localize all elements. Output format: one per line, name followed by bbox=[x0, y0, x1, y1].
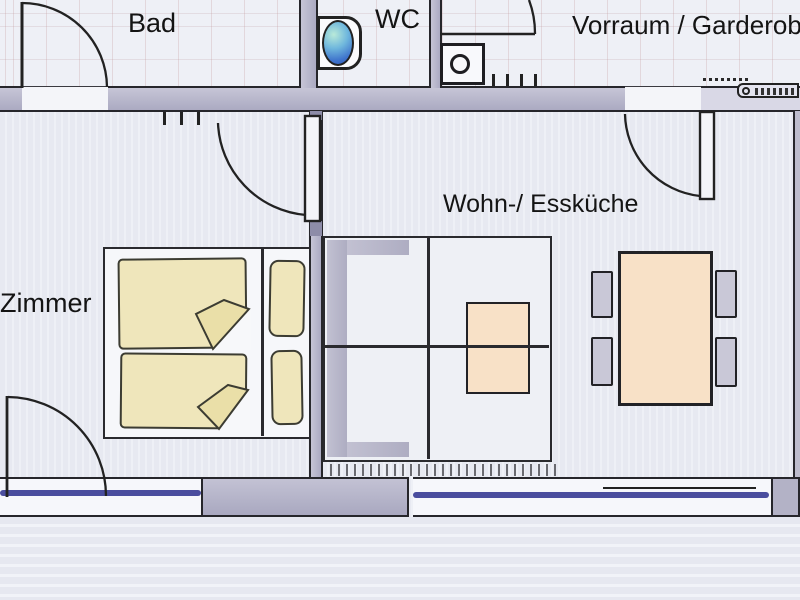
radiator-fins bbox=[755, 88, 797, 95]
double-bed bbox=[103, 247, 311, 439]
wall-bottom-segment bbox=[201, 477, 409, 517]
room-label-vorraum: Vorraum / Garderobe bbox=[572, 10, 800, 41]
coffee-table bbox=[466, 302, 530, 394]
wall-radiator bbox=[737, 83, 799, 98]
sofa-divider-line bbox=[427, 238, 430, 459]
dining-chair bbox=[715, 337, 737, 387]
sofa-armrest bbox=[347, 240, 409, 255]
room-label-wc: WC bbox=[375, 4, 420, 35]
dining-chair bbox=[715, 270, 737, 318]
wall-right-edge bbox=[793, 111, 800, 477]
wall-segment bbox=[108, 86, 625, 112]
radiator-valve-icon bbox=[742, 87, 750, 95]
window-sill-line bbox=[603, 487, 756, 489]
room-label-zimmer: Zimmer bbox=[0, 288, 91, 319]
wall-segment bbox=[0, 86, 22, 112]
window-zimmer bbox=[0, 477, 201, 517]
dining-chair bbox=[591, 337, 613, 386]
pillow bbox=[268, 260, 305, 338]
sofa-bed-area bbox=[323, 236, 552, 462]
bad-door-threshold bbox=[22, 86, 108, 112]
duvet bbox=[118, 257, 248, 349]
wall-bottom-corner bbox=[771, 477, 800, 517]
dotted-wall-line bbox=[703, 78, 748, 81]
wall-hook-tick bbox=[163, 112, 166, 125]
outside-area bbox=[0, 517, 800, 600]
window-kueche bbox=[413, 477, 771, 517]
washing-machine-drum-icon bbox=[450, 54, 470, 74]
window-glazing-line bbox=[0, 490, 201, 496]
wall-stub bbox=[310, 111, 322, 120]
wall-hook-tick bbox=[180, 112, 183, 125]
wall-hook-tick bbox=[197, 112, 200, 125]
dining-chair bbox=[591, 271, 613, 318]
wall-bad-wc bbox=[299, 0, 318, 88]
room-label-bad: Bad bbox=[128, 8, 176, 39]
wall-stub bbox=[310, 221, 322, 236]
sofa-backrest bbox=[327, 240, 347, 457]
wall-zimmer-kueche bbox=[309, 111, 323, 477]
radiator-strip bbox=[330, 464, 558, 476]
toilet-bowl-icon bbox=[322, 20, 354, 66]
sofa-armrest bbox=[347, 442, 409, 457]
coffee-table-divider bbox=[466, 345, 530, 348]
bed-divider bbox=[261, 249, 264, 436]
window-glazing-line bbox=[413, 492, 769, 498]
floor-plan-scan: { "plan_type": "apartment floor plan (ha… bbox=[0, 0, 800, 600]
washing-machine bbox=[440, 43, 485, 85]
dining-table bbox=[618, 251, 713, 406]
pillow bbox=[270, 350, 303, 426]
room-label-wohnkueche: Wohn-/ Essküche bbox=[443, 190, 638, 219]
kitchen-door-threshold bbox=[625, 86, 701, 112]
duvet bbox=[120, 352, 248, 429]
